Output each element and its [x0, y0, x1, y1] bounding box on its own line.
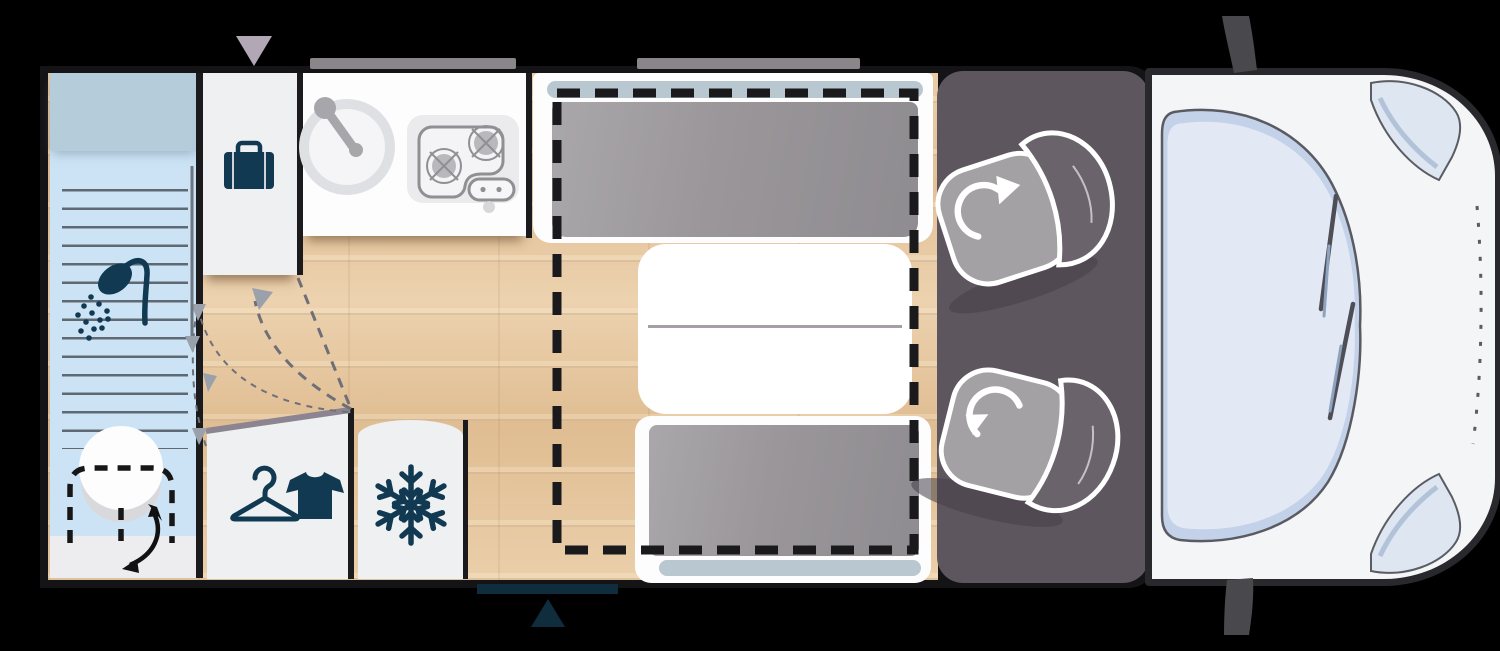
top-door-marker-triangle	[236, 36, 272, 66]
wall-bathroom-right	[196, 73, 203, 578]
front-bench-cushion	[552, 102, 918, 237]
mirror-top-icon	[1222, 16, 1257, 73]
wardrobe	[207, 409, 348, 579]
wall-fridge-right	[463, 420, 468, 579]
fridge	[358, 420, 463, 579]
bathroom-cabinet-band	[50, 73, 198, 151]
table-fold-line	[648, 325, 902, 328]
wall-kitchen-right	[526, 73, 532, 238]
wall-wardrobe-fridge	[348, 408, 354, 579]
rear-bench-headrest	[659, 560, 921, 576]
rear-bench-cushion	[649, 425, 919, 556]
wall-cabinet-kitchen	[297, 73, 303, 275]
vehicle-front	[1145, 68, 1500, 586]
dinette-front-bench	[533, 73, 933, 243]
shower-room	[50, 73, 198, 578]
bathroom-counter	[50, 536, 198, 578]
driver-cab	[937, 71, 1149, 583]
roof-bar-kitchen	[310, 58, 516, 69]
storage-cabinet	[203, 73, 297, 275]
entry-arrow-triangle	[531, 599, 565, 627]
entry-step	[477, 584, 618, 594]
shower-tray-lines	[62, 173, 188, 449]
folding-table	[638, 244, 912, 414]
kitchen-block	[303, 73, 526, 236]
mirror-bottom-icon	[1224, 578, 1253, 635]
dinette-rear-bench	[635, 416, 931, 583]
front-bench-headrest	[547, 81, 923, 98]
roof-bar-dinette	[637, 58, 860, 69]
motorhome-floorplan: Motorhome floor plan - top view diagram	[40, 16, 1500, 635]
